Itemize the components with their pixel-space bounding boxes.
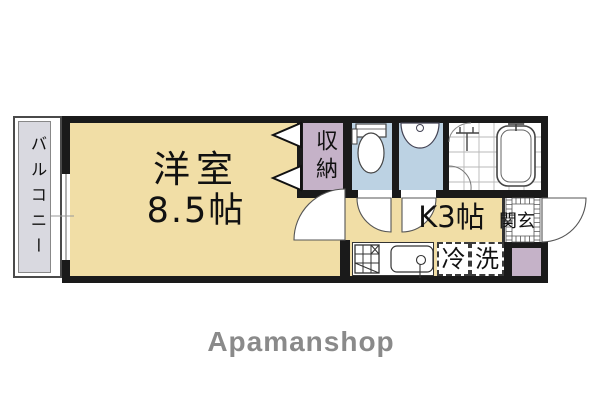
bathroom-door-arc — [449, 166, 471, 190]
main-room-size: 8.5帖 — [96, 194, 296, 229]
stove-icon — [355, 245, 379, 273]
closet-label: 収納 — [310, 127, 335, 187]
entrance-label: 玄関 — [514, 201, 533, 241]
kitchen-sink-icon — [391, 246, 433, 278]
toilet-icon — [352, 124, 386, 173]
main-room-door-swing — [294, 189, 345, 240]
washbasin-icon — [401, 123, 439, 148]
sliding-window-icon — [51, 174, 74, 260]
balcony-label: バルコニー — [24, 129, 45, 269]
toilet-door-swing — [357, 198, 391, 232]
apamanshop-logo: Apamanshop — [150, 328, 452, 356]
entrance-door-swing — [542, 198, 586, 242]
refrigerator-label: 冷 — [437, 247, 470, 271]
washing-machine-label: 洗 — [470, 247, 504, 271]
shower-faucet-icon — [456, 127, 479, 151]
main-room-name: 洋室 — [106, 151, 286, 188]
kitchen-label: K3帖 — [399, 203, 504, 232]
bathtub-icon — [497, 124, 535, 186]
floor-plan: バルコニー 洋室 8.5帖 収納 K3帖 玄関 冷 洗 Apamanshop — [0, 0, 600, 400]
